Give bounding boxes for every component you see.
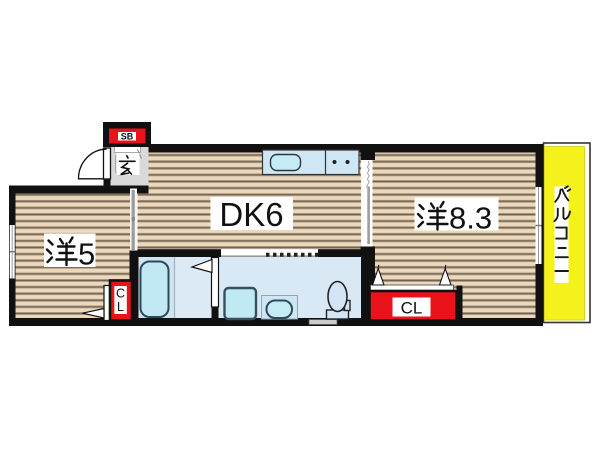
svg-text:L: L — [117, 300, 124, 314]
svg-text:DK6: DK6 — [219, 196, 283, 233]
svg-text:8.3: 8.3 — [449, 201, 492, 236]
svg-text:5: 5 — [78, 237, 95, 272]
svg-text:SB: SB — [121, 132, 134, 142]
svg-text:C: C — [116, 286, 125, 300]
svg-text:CL: CL — [401, 299, 423, 318]
